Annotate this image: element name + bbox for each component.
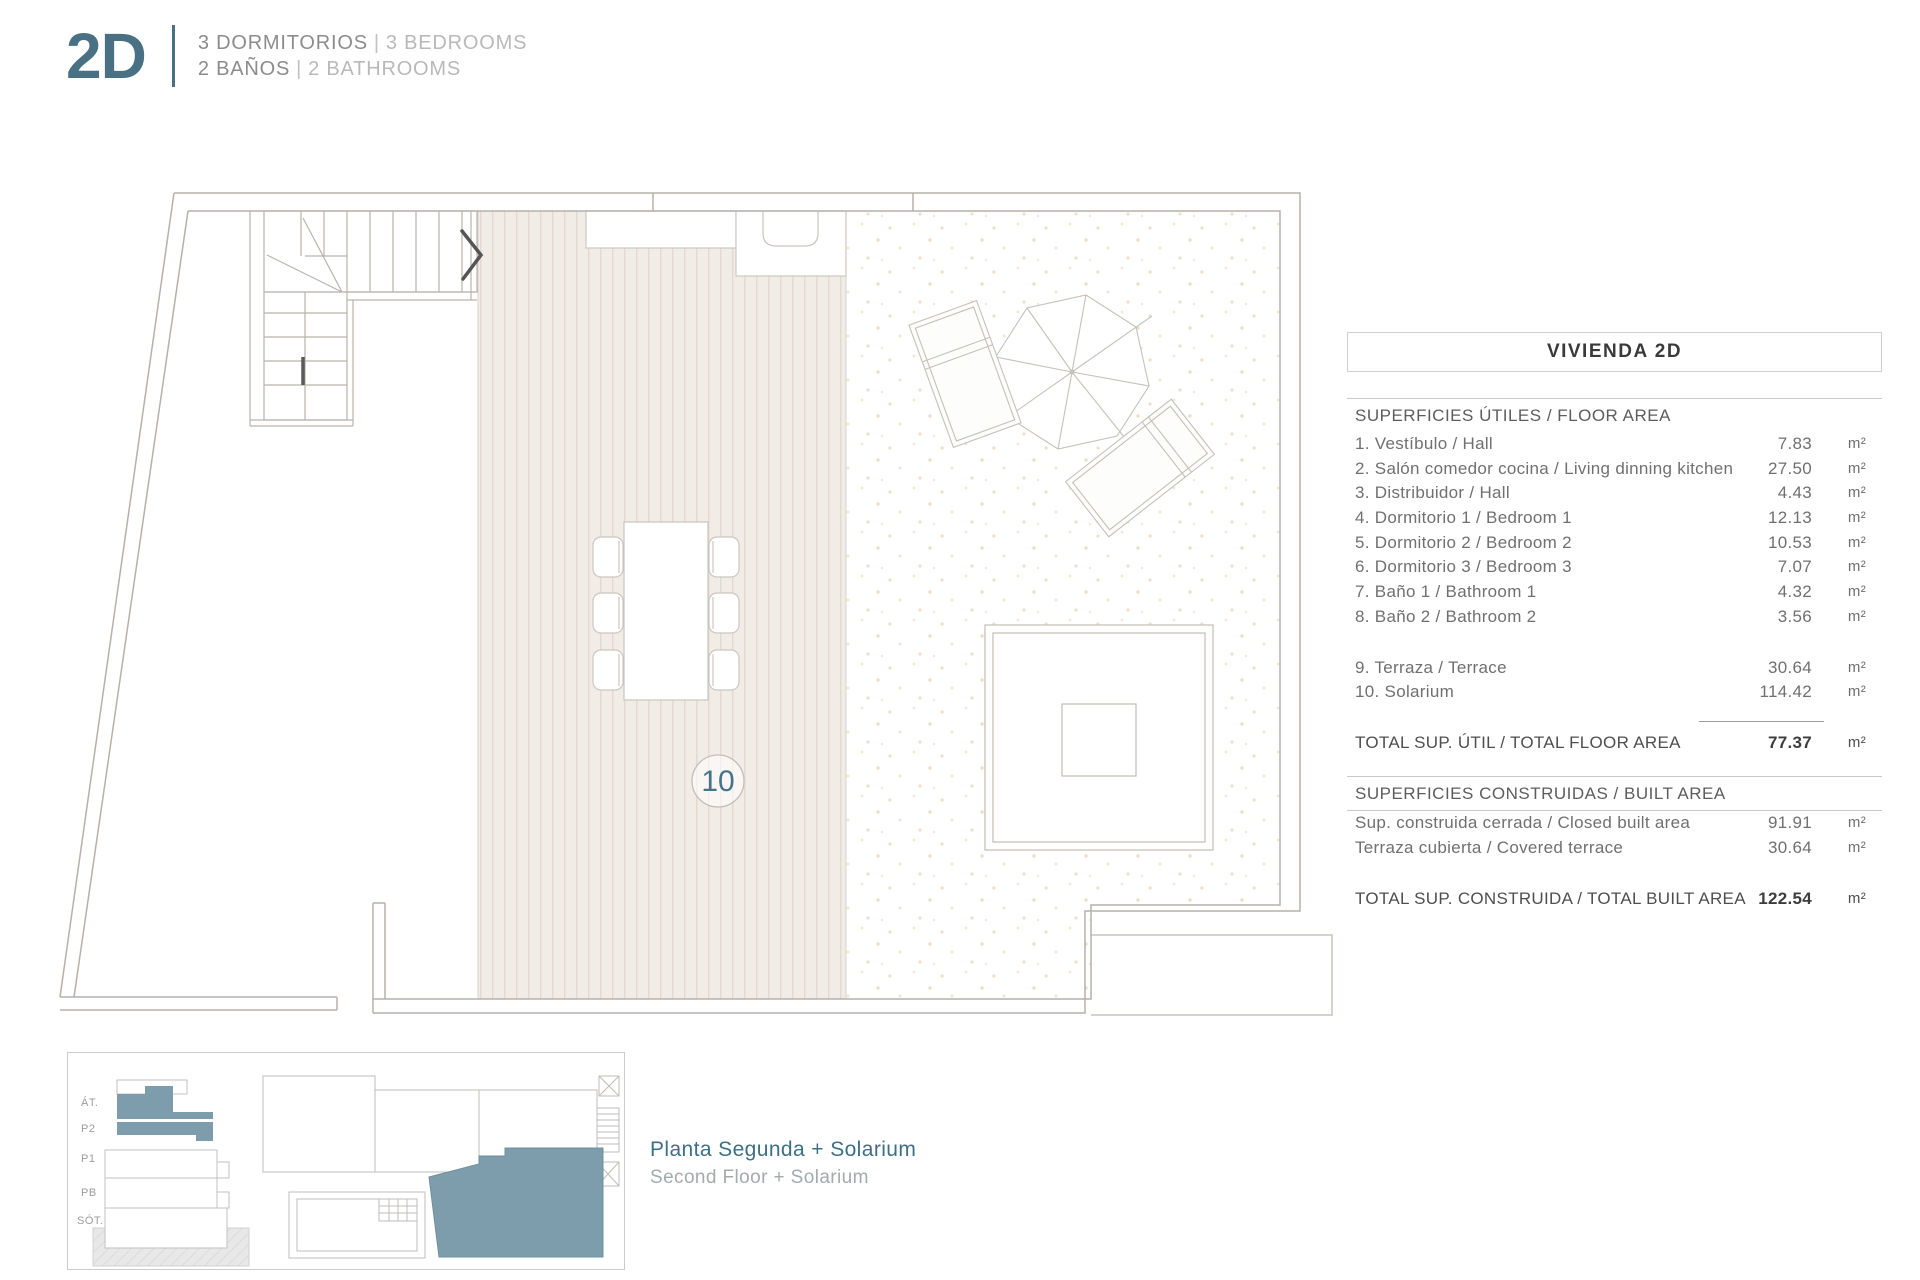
- row-unit: m²: [1848, 580, 1866, 605]
- row-label: 4. Dormitorio 1 / Bedroom 1: [1355, 508, 1572, 527]
- row-unit: m²: [1848, 605, 1866, 630]
- row-unit: m²: [1848, 481, 1866, 506]
- total-unit: m²: [1848, 886, 1866, 912]
- row-label: 9. Terraza / Terrace: [1355, 658, 1507, 677]
- table-row: 1. Vestíbulo / Hall7.83m²: [1347, 432, 1882, 457]
- table-row: 10. Solarium114.42m²: [1347, 680, 1882, 705]
- dining-table: [624, 522, 708, 700]
- table-row: 6. Dormitorio 3 / Bedroom 37.07m²: [1347, 555, 1882, 580]
- total-label: TOTAL SUP. CONSTRUIDA / TOTAL BUILT AREA: [1355, 889, 1746, 908]
- total-value: 122.54: [1758, 886, 1812, 912]
- staircase: [250, 211, 477, 426]
- row-unit: m²: [1848, 811, 1866, 836]
- lower-terrace-edge: [1091, 935, 1332, 1015]
- table-row: 3. Distribuidor / Hall4.43m²: [1347, 481, 1882, 506]
- row-unit: m²: [1848, 432, 1866, 457]
- table-row: 5. Dormitorio 2 / Bedroom 210.53m²: [1347, 531, 1882, 556]
- area-table: VIVIENDA 2D SUPERFICIES ÚTILES / FLOOR A…: [1347, 332, 1882, 912]
- table-row: 2. Salón comedor cocina / Living dinning…: [1347, 457, 1882, 482]
- row-label: Terraza cubierta / Covered terrace: [1355, 838, 1623, 857]
- row-value: 27.50: [1768, 457, 1812, 482]
- table-row: Terraza cubierta / Covered terrace30.64m…: [1347, 836, 1882, 861]
- chair: [709, 650, 739, 690]
- row-unit: m²: [1848, 836, 1866, 861]
- total-value: 77.37: [1768, 730, 1812, 756]
- level-label: PB: [81, 1187, 97, 1199]
- row-label: Sup. construida cerrada / Closed built a…: [1355, 813, 1690, 832]
- row-unit: m²: [1848, 531, 1866, 556]
- row-value: 114.42: [1759, 680, 1812, 705]
- row-value: 91.91: [1768, 811, 1812, 836]
- room-number-badge: 10: [692, 755, 744, 807]
- chair: [709, 593, 739, 633]
- table-title: VIVIENDA 2D: [1347, 332, 1882, 372]
- chair: [593, 537, 623, 577]
- row-value: 7.83: [1778, 432, 1812, 457]
- table-row: 8. Baño 2 / Bathroom 23.56m²: [1347, 605, 1882, 630]
- chair: [709, 537, 739, 577]
- row-label: 7. Baño 1 / Bathroom 1: [1355, 582, 1536, 601]
- row-label: 2. Salón comedor cocina / Living dinning…: [1355, 459, 1733, 478]
- row-value: 4.32: [1778, 580, 1812, 605]
- total-unit: m²: [1848, 730, 1866, 756]
- sink-basin: [763, 212, 818, 246]
- total-label: TOTAL SUP. ÚTIL / TOTAL FLOOR AREA: [1355, 733, 1681, 752]
- caption-en: Second Floor + Solarium: [650, 1167, 916, 1189]
- row-value: 7.07: [1778, 555, 1812, 580]
- built-area-header: SUPERFICIES CONSTRUIDAS / BUILT AREA: [1347, 776, 1882, 811]
- row-value: 30.64: [1768, 836, 1812, 861]
- caption-es: Planta Segunda + Solarium: [650, 1138, 916, 1162]
- level-label: P1: [81, 1153, 95, 1165]
- row-unit: m²: [1848, 656, 1866, 681]
- row-unit: m²: [1848, 506, 1866, 531]
- locator-panel: ÁT. P2 P1 PB SÓT.: [67, 1052, 625, 1270]
- level-label: ÁT.: [81, 1096, 98, 1109]
- row-label: 5. Dormitorio 2 / Bedroom 2: [1355, 533, 1572, 552]
- floor-area-header: SUPERFICIES ÚTILES / FLOOR AREA: [1347, 398, 1882, 432]
- row-value: 12.13: [1768, 506, 1812, 531]
- dining-set: [593, 522, 739, 700]
- row-value: 30.64: [1768, 656, 1812, 681]
- row-unit: m²: [1848, 457, 1866, 482]
- level-label: P2: [81, 1123, 95, 1135]
- brochure-page: 2D 3 DORMITORIOS|3 BEDROOMS 2 BAÑOS|2 BA…: [0, 0, 1920, 1280]
- skylight: [985, 625, 1213, 850]
- floor-plan: 10: [0, 0, 1400, 1060]
- subtotal-rule: [1699, 721, 1824, 722]
- table-row: 9. Terraza / Terrace30.64m²: [1347, 656, 1882, 681]
- plan-caption: Planta Segunda + Solarium Second Floor +…: [650, 1138, 916, 1189]
- solarium-number: 10: [701, 765, 734, 798]
- row-value: 3.56: [1778, 605, 1812, 630]
- table-row: 4. Dormitorio 1 / Bedroom 112.13m²: [1347, 506, 1882, 531]
- row-label: 6. Dormitorio 3 / Bedroom 3: [1355, 557, 1572, 576]
- chair: [593, 650, 623, 690]
- table-row: Sup. construida cerrada / Closed built a…: [1347, 811, 1882, 836]
- row-label: 3. Distribuidor / Hall: [1355, 483, 1510, 502]
- table-row: 7. Baño 1 / Bathroom 14.32m²: [1347, 580, 1882, 605]
- row-unit: m²: [1848, 680, 1866, 705]
- row-label: 1. Vestíbulo / Hall: [1355, 434, 1493, 453]
- chair: [593, 593, 623, 633]
- locator-key-plan: [263, 1076, 619, 1258]
- row-value: 4.43: [1778, 481, 1812, 506]
- total-built-area-row: TOTAL SUP. CONSTRUIDA / TOTAL BUILT AREA…: [1347, 886, 1882, 912]
- level-label: SÓT.: [77, 1214, 103, 1227]
- row-label: 8. Baño 2 / Bathroom 2: [1355, 607, 1536, 626]
- row-value: 10.53: [1768, 531, 1812, 556]
- total-floor-area-row: TOTAL SUP. ÚTIL / TOTAL FLOOR AREA77.37m…: [1347, 730, 1882, 756]
- row-unit: m²: [1848, 555, 1866, 580]
- row-label: 10. Solarium: [1355, 682, 1454, 701]
